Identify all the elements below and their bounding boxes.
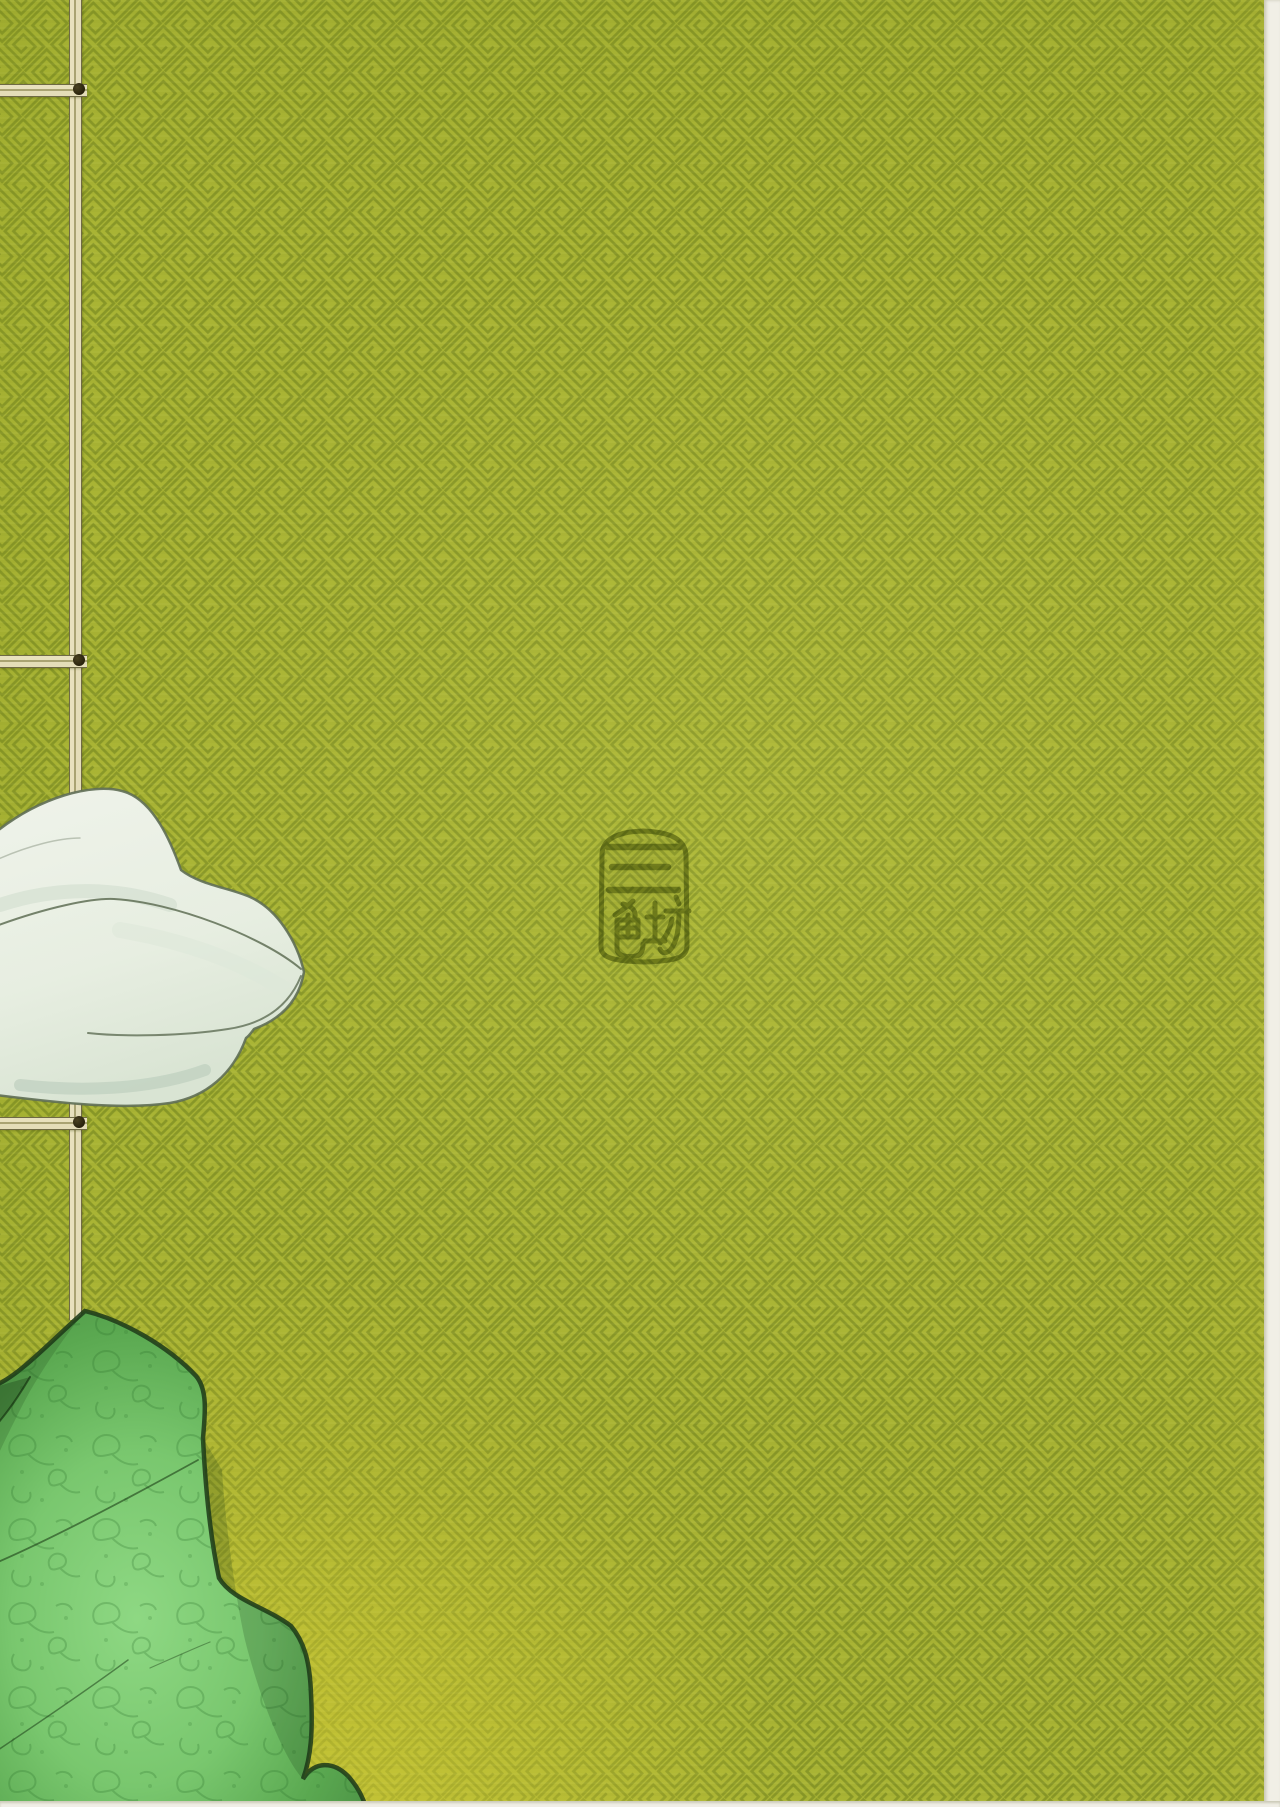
book-back-cover: 三色坊 xyxy=(0,0,1280,1807)
white-fabric xyxy=(0,789,304,1106)
green-fabric xyxy=(0,1311,366,1807)
scan-border-right xyxy=(1264,0,1280,1807)
artwork-overlay xyxy=(0,0,1280,1807)
white-fabric-shape xyxy=(0,789,304,1106)
hanko-seal xyxy=(601,831,689,962)
scan-border-bottom xyxy=(0,1801,1280,1807)
